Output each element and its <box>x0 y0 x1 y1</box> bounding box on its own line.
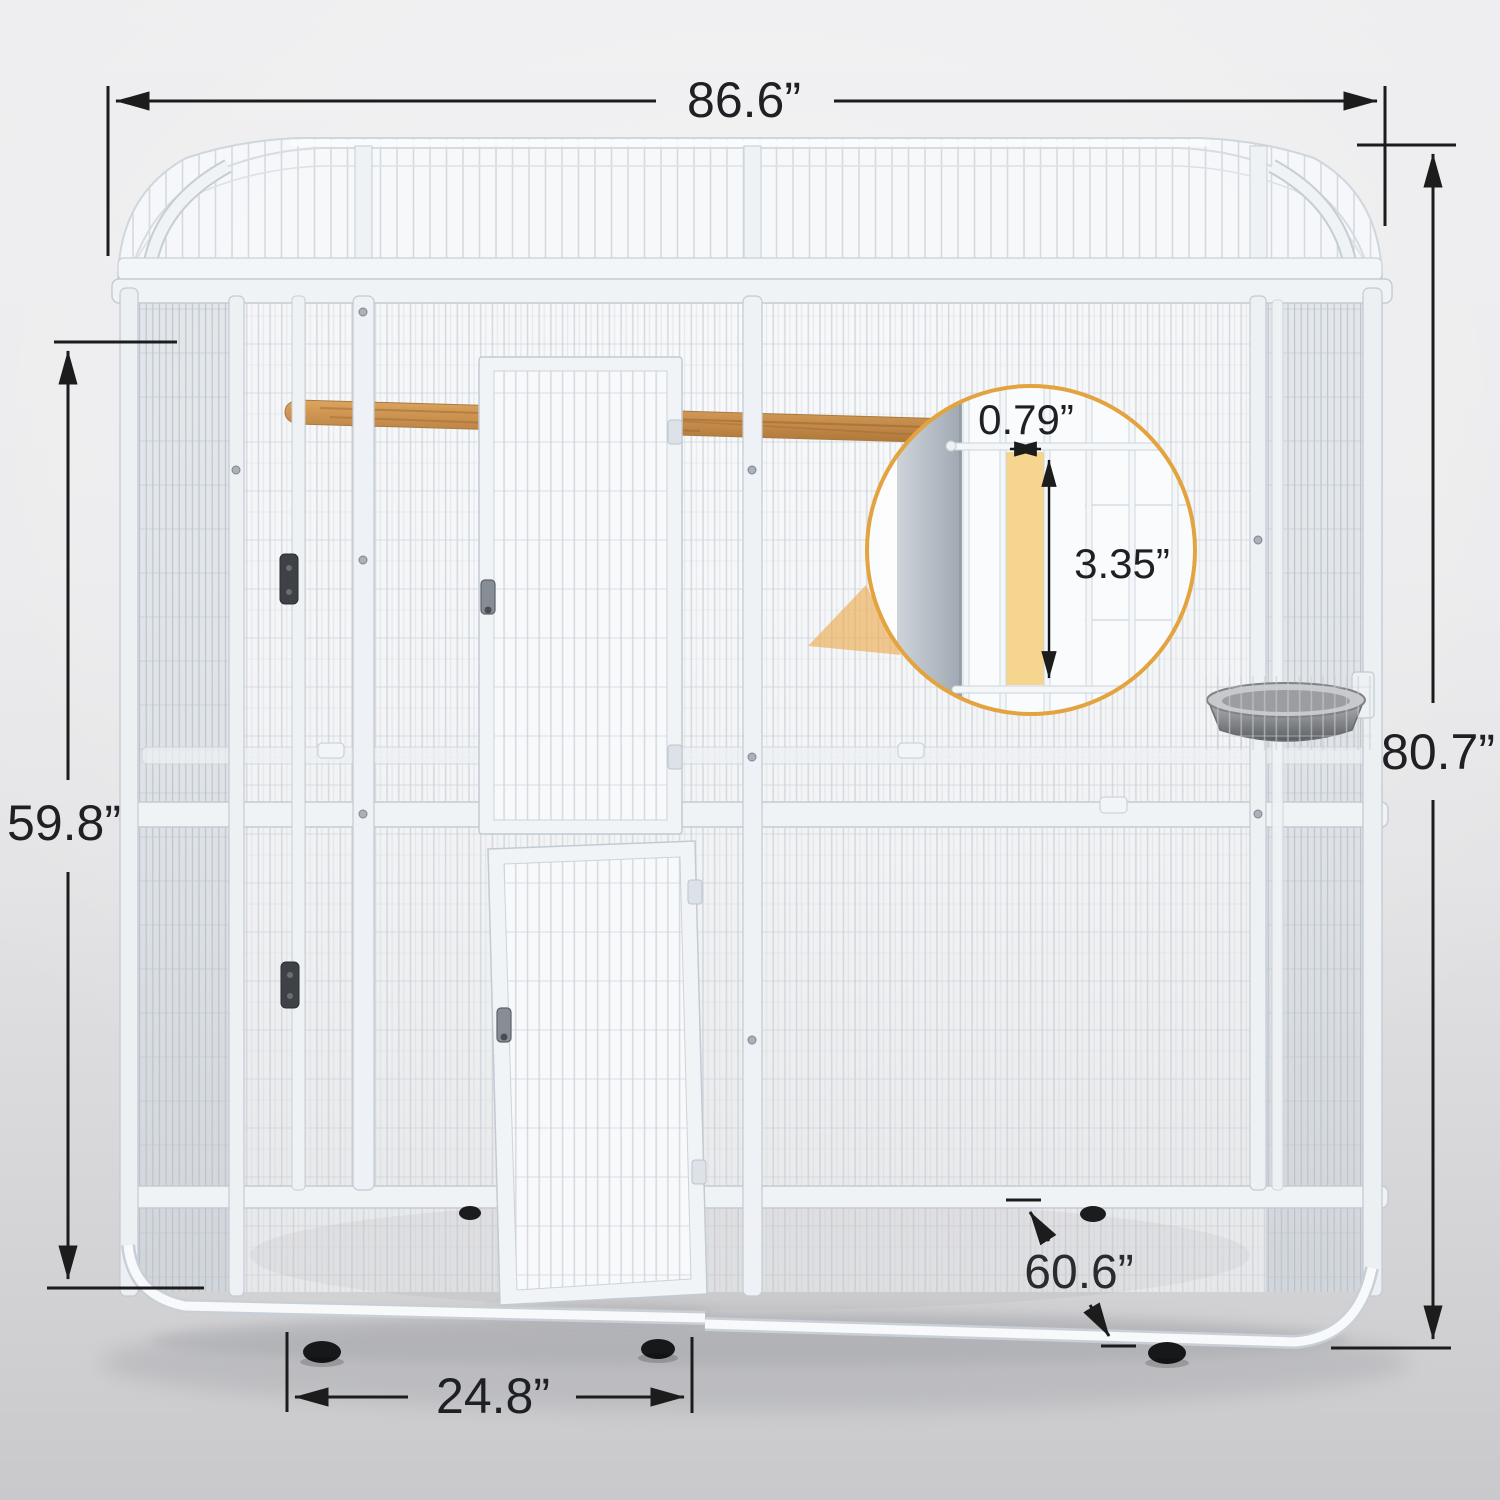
panel-latch <box>280 554 298 604</box>
lower-door-latch <box>497 1008 511 1042</box>
upper-door-latch <box>481 580 495 614</box>
inset-highlight-gap <box>1006 452 1044 685</box>
cage-illustration <box>100 138 1410 1412</box>
wire-gap-height-label: 3.35” <box>1074 540 1170 587</box>
overall-width-label: 86.6” <box>687 72 801 128</box>
lower-door-hinge <box>692 1160 706 1184</box>
feeder-bowl <box>1206 672 1374 750</box>
side-height-label: 59.8” <box>7 795 121 851</box>
upper-door-hinge <box>668 745 682 769</box>
bird-cage-dimension-diagram: 86.6” 80.7” 59.8” 24.8” 60.6” <box>0 0 1500 1500</box>
door-width-label: 24.8” <box>436 1368 550 1424</box>
upper-door <box>479 357 682 834</box>
product-dimension-image: 86.6” 80.7” 59.8” 24.8” 60.6” <box>0 0 1500 1500</box>
upper-door-hinge <box>668 420 682 444</box>
depth-label: 60.6” <box>1024 1246 1133 1299</box>
wire-gap-width-label: 0.79” <box>978 396 1074 443</box>
panel-latch <box>281 962 299 1008</box>
overall-height-label: 80.7” <box>1381 724 1495 780</box>
lower-door <box>485 841 715 1322</box>
lower-door-hinge <box>688 880 702 904</box>
